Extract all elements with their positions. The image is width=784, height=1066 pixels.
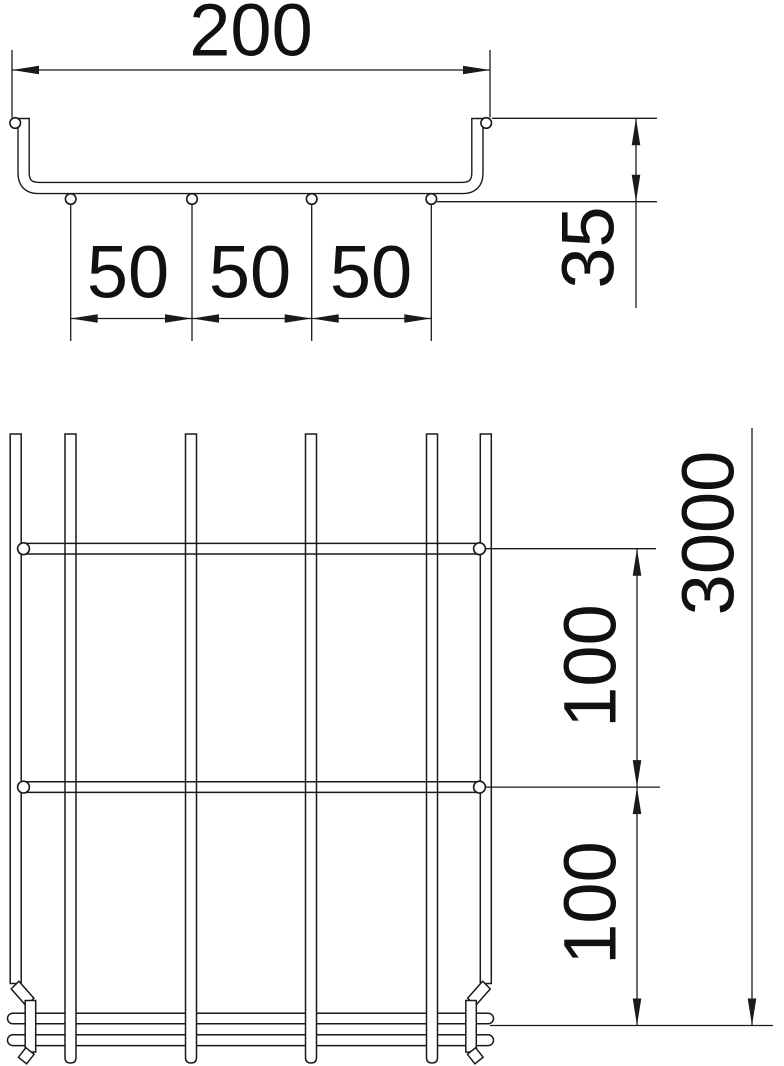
side-wire-right (480, 434, 491, 984)
dim-spacing3-label: 50 (330, 231, 412, 314)
rung-end-left (18, 543, 30, 555)
left-end-bar (25, 1001, 36, 1053)
arrow-down-icon (633, 999, 642, 1026)
dim-rung-pitch: 100 100 (486, 549, 773, 1026)
channel-profile-core (24, 119, 478, 189)
arrow-right-icon (165, 314, 192, 323)
dimension-drawing-page: 200 35 50 50 50 (0, 0, 784, 1066)
longitudinal-wire-3 (306, 434, 317, 1063)
end-rung-2 (8, 1035, 494, 1046)
top-right-edge-wire (481, 118, 492, 129)
longitudinal-wire-1 (65, 434, 76, 1063)
dim-spacing1-label: 50 (87, 231, 169, 314)
arrow-down-icon (632, 175, 641, 202)
arrow-down-icon (748, 999, 757, 1026)
dim-height-label: 35 (547, 206, 630, 288)
cross-rung-2 (18, 781, 486, 793)
dimension-drawing: 200 35 50 50 50 (0, 0, 784, 1066)
rung-end-left (18, 781, 30, 793)
arrow-left-icon (71, 314, 98, 323)
arrow-right-icon (285, 314, 312, 323)
bottom-wire-3 (306, 194, 317, 205)
dim-spacing2-label: 50 (209, 231, 291, 314)
right-end-bar (466, 1001, 477, 1053)
rung-end-right (474, 543, 486, 555)
dim-wire-spacing: 50 50 50 (71, 205, 432, 341)
arrow-left-icon (192, 314, 219, 323)
longitudinal-view: 100 100 3000 (8, 428, 774, 1064)
dim-height: 35 (437, 118, 657, 308)
end-rung-1 (8, 1013, 494, 1024)
arrow-up-icon (633, 787, 642, 814)
arrow-right-icon (404, 314, 431, 323)
top-left-edge-wire (10, 118, 21, 129)
side-wire-left (10, 434, 21, 984)
arrow-right-icon (463, 66, 490, 75)
bottom-wire-2 (187, 194, 198, 205)
arrow-left-icon (312, 314, 339, 323)
arrow-left-icon (12, 66, 39, 75)
dim-pitch1-label: 100 (549, 604, 632, 727)
arrow-up-icon (632, 118, 641, 145)
dim-length: 3000 (667, 428, 757, 1026)
channel-profile-outline (24, 119, 478, 189)
dim-pitch2-label: 100 (549, 841, 632, 964)
rung-end-right (474, 781, 486, 793)
longitudinal-wire-4 (427, 434, 438, 1063)
bottom-wire-4 (426, 194, 437, 205)
bottom-wire-1 (65, 194, 76, 205)
dim-length-label: 3000 (667, 451, 750, 616)
cross-rung-1 (18, 543, 486, 555)
arrow-up-icon (633, 549, 642, 576)
dim-width: 200 (12, 0, 490, 118)
arrow-down-icon (633, 760, 642, 787)
longitudinal-wire-2 (186, 434, 197, 1063)
cross-section-view: 200 35 50 50 50 (10, 0, 657, 341)
dim-width-label: 200 (189, 0, 312, 72)
